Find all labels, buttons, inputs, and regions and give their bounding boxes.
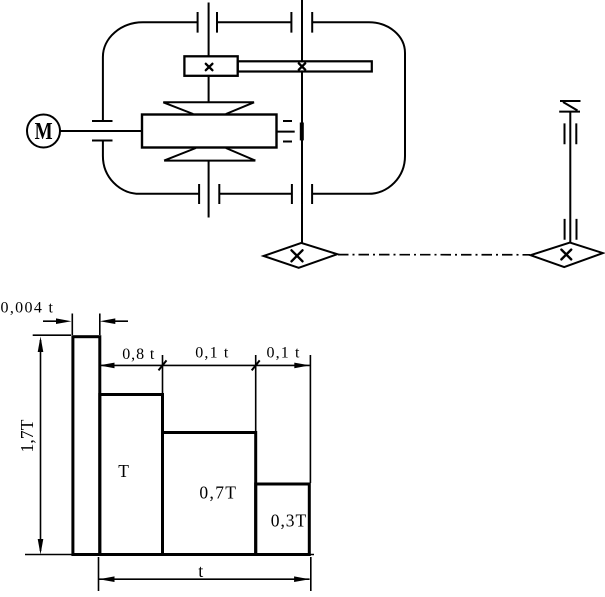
svg-text:0,1 t: 0,1 t xyxy=(195,345,229,362)
svg-text:M: M xyxy=(35,119,53,145)
svg-text:T: T xyxy=(118,461,129,481)
svg-text:1,7T: 1,7T xyxy=(17,419,37,452)
svg-text:0,1 t: 0,1 t xyxy=(267,345,301,362)
svg-text:0,3T: 0,3T xyxy=(271,511,307,531)
svg-text:0,8 t: 0,8 t xyxy=(122,346,155,363)
svg-text:0,7T: 0,7T xyxy=(199,483,236,503)
svg-text:0,004 t: 0,004 t xyxy=(1,300,54,317)
svg-text:t: t xyxy=(198,561,203,581)
